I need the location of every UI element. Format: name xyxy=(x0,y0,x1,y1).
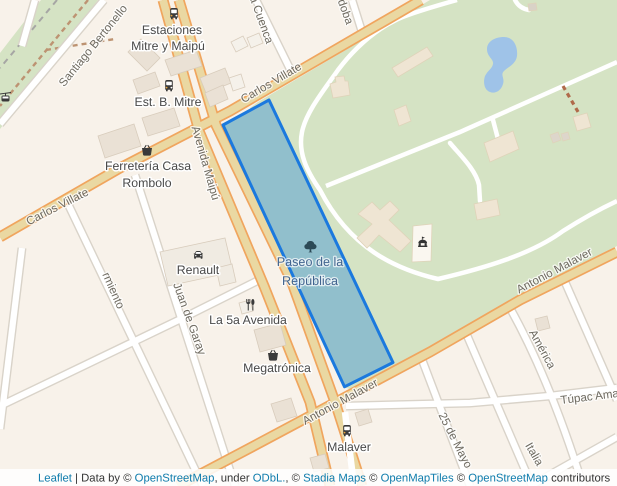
svg-text:Ferretería Casa: Ferretería Casa xyxy=(105,159,191,173)
svg-text:Mitre y Maipú: Mitre y Maipú xyxy=(131,39,205,53)
svg-text:Megatrónica: Megatrónica xyxy=(243,361,311,375)
svg-text:Rombolo: Rombolo xyxy=(122,176,171,190)
svg-text:Estaciones: Estaciones xyxy=(142,23,202,37)
svg-text:Malaver: Malaver xyxy=(327,440,371,454)
svg-text:Renault: Renault xyxy=(177,263,220,277)
svg-text:Leaflet | Data by © OpenStreet: Leaflet | Data by © OpenStreetMap, under… xyxy=(38,473,610,485)
svg-text:Paseo de la: Paseo de la xyxy=(277,255,344,269)
svg-text:República: República xyxy=(282,274,338,288)
svg-text:La 5a Avenida: La 5a Avenida xyxy=(209,313,287,327)
svg-text:Est. B. Mitre: Est. B. Mitre xyxy=(135,95,202,109)
